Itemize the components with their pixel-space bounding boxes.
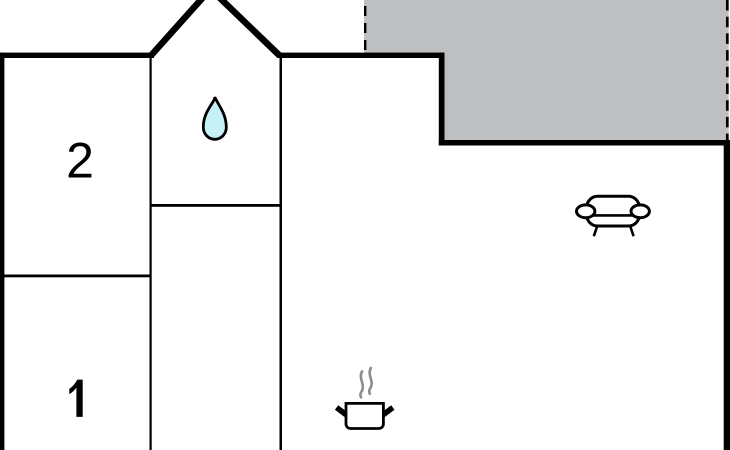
svg-text:2: 2 xyxy=(66,133,94,189)
